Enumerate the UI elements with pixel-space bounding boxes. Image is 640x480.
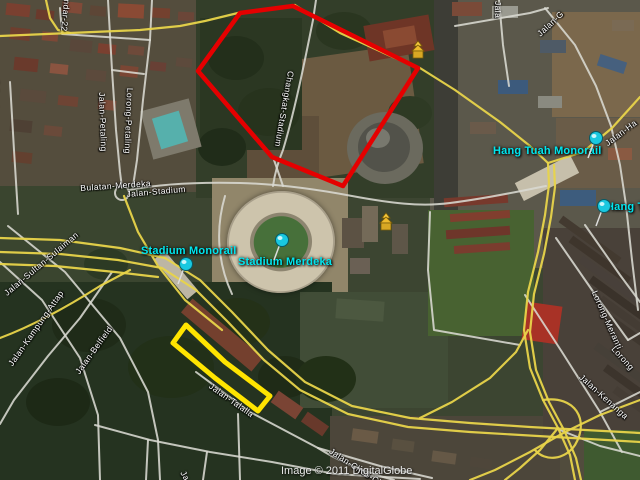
copyright-attribution: Image © 2011 DigitalGlobe: [281, 465, 412, 477]
pushpin-icon[interactable]: [584, 129, 604, 164]
pushpin-icon[interactable]: [174, 255, 194, 290]
road-line: [560, 430, 640, 456]
road-line: [428, 212, 520, 345]
road-line: [146, 440, 148, 480]
road-line: [203, 452, 207, 480]
road-line: [628, 333, 640, 340]
road-line: [10, 82, 18, 214]
road-line: [108, 0, 122, 188]
road-line: [133, 0, 152, 186]
road-line: [295, 5, 548, 163]
road-line: [556, 238, 628, 340]
road-line: [112, 70, 144, 74]
road-line: [199, 14, 283, 186]
pagoda-icon[interactable]: [378, 212, 394, 237]
pushpin-icon[interactable]: [270, 231, 290, 266]
red-boundary-polygon[interactable]: [198, 6, 418, 186]
road-label: Jalan-Petaling: [97, 92, 109, 152]
pagoda-icon[interactable]: [410, 40, 426, 65]
road-label: Jala: [493, 1, 503, 18]
road-line: [60, 8, 150, 40]
pushpin-icon[interactable]: [592, 197, 612, 232]
road-network-white: [0, 0, 640, 480]
map-overlay-layer: [0, 0, 640, 480]
satellite-map-view[interactable]: ndar-22 Jalan-Petaling Lorong-Petaling B…: [0, 0, 640, 480]
road-line: [238, 414, 240, 480]
